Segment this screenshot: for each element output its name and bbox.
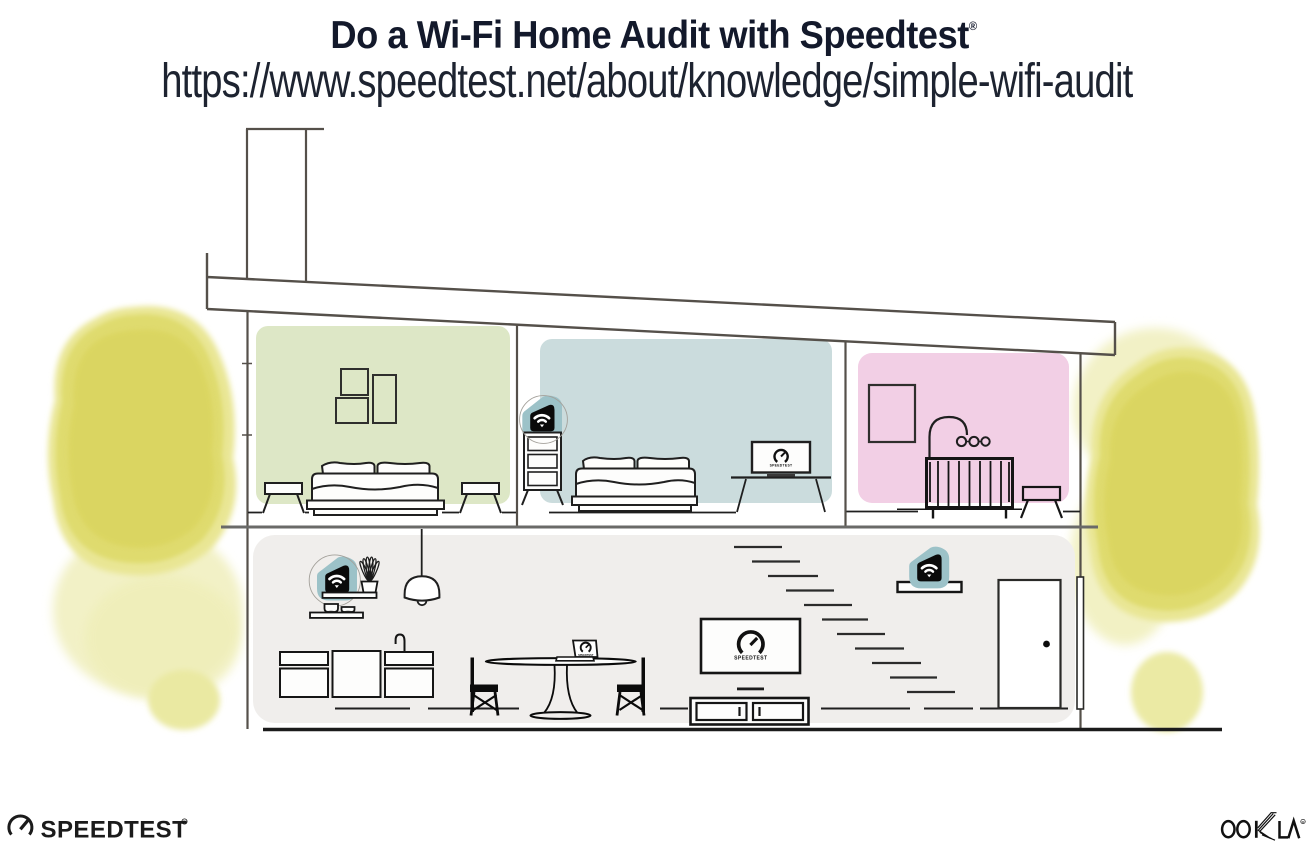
svg-text:SPEEDTEST: SPEEDTEST: [734, 656, 767, 662]
svg-text:SPEEDTEST: SPEEDTEST: [41, 817, 188, 844]
svg-text:R: R: [1302, 820, 1305, 824]
svg-text:SPEEDTEST: SPEEDTEST: [770, 464, 793, 468]
svg-text:SPEEDTEST: SPEEDTEST: [578, 653, 594, 657]
